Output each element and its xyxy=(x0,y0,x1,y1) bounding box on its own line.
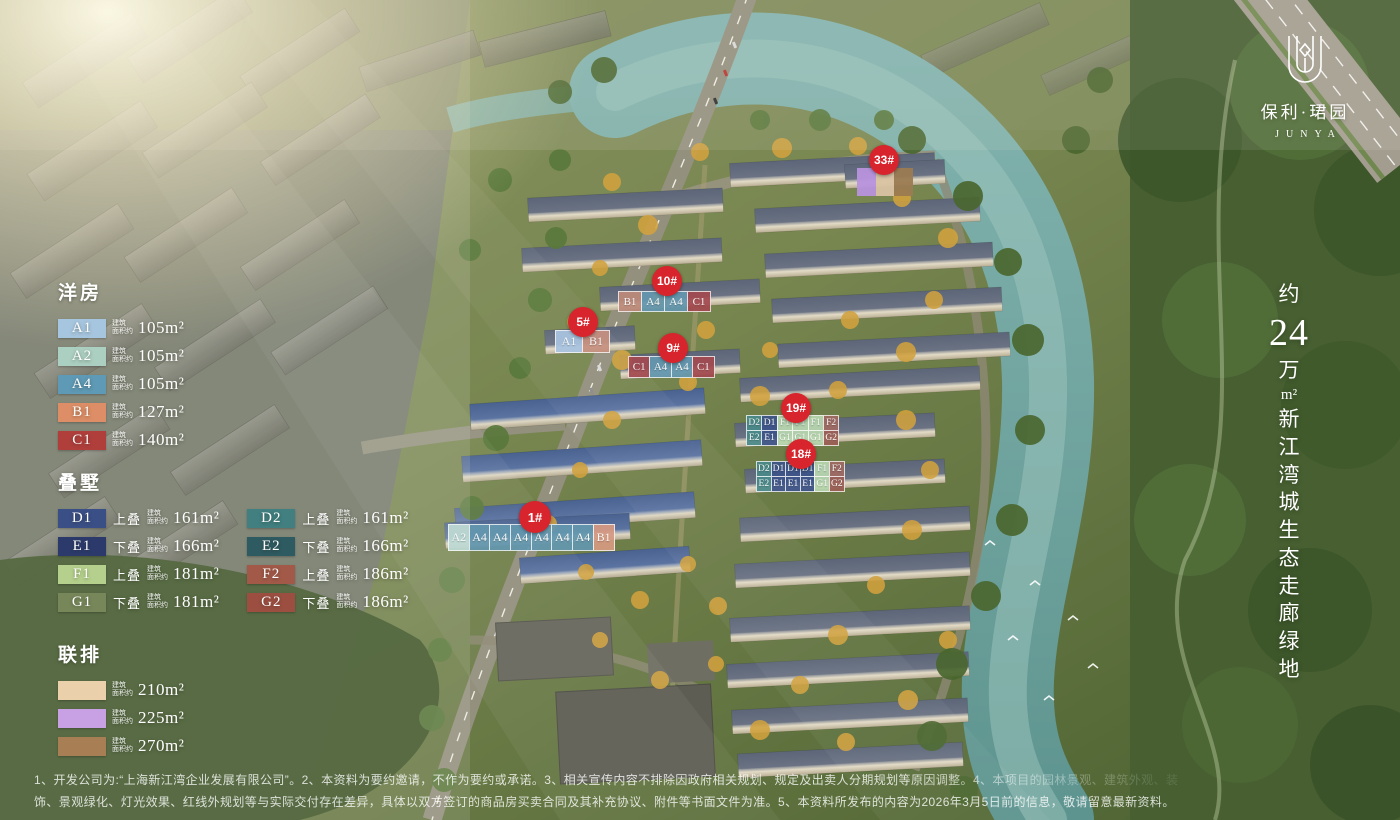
tagline-char: 城 xyxy=(1279,492,1300,513)
tagline-char: 万 xyxy=(1279,360,1300,381)
unit-cell: C1 xyxy=(628,356,650,378)
legend-rows: D1 上叠 建筑面积约 161m² E1 下叠 建筑面积约 166m² F1 xyxy=(58,508,219,620)
unit-type-swatch: G2 xyxy=(247,593,295,612)
building-badge: 19# xyxy=(781,393,811,423)
unit-cell: A4 xyxy=(572,524,594,551)
area-value: 270m² xyxy=(138,736,184,756)
tagline-char: 态 xyxy=(1279,548,1300,569)
area-prefix: 建筑面积约 xyxy=(336,594,357,610)
unit-cell: F2 xyxy=(829,461,845,477)
legend-row: E1 下叠 建筑面积约 166m² xyxy=(58,536,219,556)
tagline-char: 江 xyxy=(1279,437,1300,458)
building-9: 9# C1A4A4C1 xyxy=(629,356,715,378)
legend-row: F2 上叠 建筑面积约 186m² xyxy=(247,564,408,584)
unit-cell: B1 xyxy=(593,524,615,551)
building-badge: 18# xyxy=(786,439,816,469)
brand-name: 保利·珺园 xyxy=(1247,98,1363,123)
building-18: 18# D2D1D1D1F1F2 E2E1E1E1G1G2 xyxy=(757,461,845,492)
unit-cell: G2 xyxy=(823,430,839,446)
unit-cell: E1 xyxy=(800,476,816,492)
tier-label: 下叠 xyxy=(113,593,141,612)
legend-row: A1 建筑面积约 105m² xyxy=(58,318,184,338)
area-prefix: 建筑面积约 xyxy=(112,320,133,336)
tagline-char: 绿 xyxy=(1279,631,1300,652)
legend-rows: D2 上叠 建筑面积约 161m² E2 下叠 建筑面积约 166m² F2 xyxy=(247,508,408,620)
unit-type-swatch: B1 xyxy=(58,403,106,422)
unit-cell: B1 xyxy=(618,291,642,312)
unit-type-swatch: G1 xyxy=(58,593,106,612)
legend-row: D2 上叠 建筑面积约 161m² xyxy=(247,508,408,528)
building-badge: 9# xyxy=(658,333,688,363)
area-value: 166m² xyxy=(362,536,408,556)
brand-latin-name: JUNYA xyxy=(1247,129,1363,140)
area-value: 127m² xyxy=(138,402,184,422)
area-value: 161m² xyxy=(362,508,408,528)
tagline-char: 地 xyxy=(1279,659,1300,680)
tier-label: 上叠 xyxy=(302,509,330,528)
unit-cell: A4 xyxy=(551,524,573,551)
area-prefix: 建筑面积约 xyxy=(336,566,357,582)
tagline-unit: m² xyxy=(1281,388,1297,403)
tier-label: 下叠 xyxy=(113,537,141,556)
unit-cell xyxy=(894,168,913,196)
disclaimer-line-1: 1、开发公司为:“上海新江湾企业发展有限公司”。2、本资料为要约邀请，不作为要约… xyxy=(34,771,1178,788)
unit-type-swatch: F2 xyxy=(247,565,295,584)
junya-monogram-icon xyxy=(1283,34,1327,84)
tagline-char: 新 xyxy=(1279,409,1300,430)
legend-section-title: 叠墅 xyxy=(58,468,409,495)
unit-cell: A2 xyxy=(448,524,470,551)
eco-corridor-tagline: 约 24 万 m² 新江湾城生态走廊绿地 xyxy=(1262,281,1316,683)
unit-cells: E2E1E1E1G1G2 xyxy=(757,476,845,492)
legend-row: 建筑面积约 210m² xyxy=(58,680,184,700)
legend-row: C1 建筑面积约 140m² xyxy=(58,430,184,450)
tagline-number: 24 xyxy=(1269,314,1309,352)
tagline-chars: 新江湾城生态走廊绿地 xyxy=(1279,406,1300,684)
area-prefix: 建筑面积约 xyxy=(112,738,133,754)
building-badge: 33# xyxy=(869,145,899,175)
legend-lianpai: 联排 建筑面积约 210m² 建筑面积约 225m² xyxy=(58,640,184,764)
unit-cell: E1 xyxy=(771,476,787,492)
unit-cell: C1 xyxy=(692,356,714,378)
unit-type-swatch: A2 xyxy=(58,347,106,366)
unit-cell: A4 xyxy=(489,524,511,551)
area-prefix: 建筑面积约 xyxy=(112,682,133,698)
legend-row: 建筑面积约 270m² xyxy=(58,736,184,756)
area-prefix: 建筑面积约 xyxy=(147,594,168,610)
building-badge: 1# xyxy=(519,501,551,533)
unit-type-swatch: E1 xyxy=(58,537,106,556)
tagline-char: 生 xyxy=(1279,520,1300,541)
building-1: 1# A2A4A4A4A4A4A4B1 xyxy=(449,524,615,551)
area-prefix: 建筑面积约 xyxy=(147,510,168,526)
tier-label: 下叠 xyxy=(302,593,330,612)
area-prefix: 建筑面积约 xyxy=(336,538,357,554)
legend-row: F1 上叠 建筑面积约 181m² xyxy=(58,564,219,584)
unit-type-swatch: D2 xyxy=(247,509,295,528)
area-value: 166m² xyxy=(173,536,219,556)
legend-section-title: 联排 xyxy=(58,640,184,667)
area-value: 140m² xyxy=(138,430,184,450)
tier-label: 上叠 xyxy=(113,565,141,584)
legend-row: E2 下叠 建筑面积约 166m² xyxy=(247,536,408,556)
brand-logo: 保利·珺园 JUNYA xyxy=(1247,34,1363,140)
legend-rows: 建筑面积约 210m² 建筑面积约 225m² 建筑面积约 270m² xyxy=(58,680,184,756)
legend-rows: A1 建筑面积约 105m² A2 建筑面积约 105m² A4 建筑面积约 xyxy=(58,318,184,450)
building-badge: 5# xyxy=(568,307,598,337)
unit-type-swatch xyxy=(58,709,106,728)
tier-label: 下叠 xyxy=(302,537,330,556)
unit-cell xyxy=(857,168,876,196)
unit-cell: F2 xyxy=(823,415,839,431)
unit-type-swatch: A1 xyxy=(58,319,106,338)
masterplan-poster: 保利·珺园 JUNYA 洋房 A1 建筑面积约 105m² A2 建筑面积约 1… xyxy=(0,0,1400,820)
area-prefix: 建筑面积约 xyxy=(112,348,133,364)
area-value: 105m² xyxy=(138,374,184,394)
tagline-char: 湾 xyxy=(1279,465,1300,486)
legend-row: G1 下叠 建筑面积约 181m² xyxy=(58,592,219,612)
legend-yangfang: 洋房 A1 建筑面积约 105m² A2 建筑面积约 105m² xyxy=(58,278,184,458)
unit-cell: G1 xyxy=(814,476,830,492)
unit-cell: D2 xyxy=(756,461,772,477)
area-prefix: 建筑面积约 xyxy=(112,710,133,726)
area-prefix: 建筑面积约 xyxy=(336,510,357,526)
area-prefix: 建筑面积约 xyxy=(112,432,133,448)
unit-type-swatch: C1 xyxy=(58,431,106,450)
legend-row: B1 建筑面积约 127m² xyxy=(58,402,184,422)
unit-cell: E2 xyxy=(746,430,762,446)
building-5: 5# A1B1 xyxy=(556,330,610,353)
area-prefix: 建筑面积约 xyxy=(147,538,168,554)
tagline-char: 廊 xyxy=(1279,603,1300,624)
unit-type-swatch: F1 xyxy=(58,565,106,584)
area-value: 105m² xyxy=(138,346,184,366)
area-value: 186m² xyxy=(362,564,408,584)
area-value: 105m² xyxy=(138,318,184,338)
unit-type-swatch xyxy=(58,737,106,756)
tier-label: 上叠 xyxy=(113,509,141,528)
area-prefix: 建筑面积约 xyxy=(147,566,168,582)
area-prefix: 建筑面积约 xyxy=(112,404,133,420)
legend-section-title: 洋房 xyxy=(58,278,184,305)
area-value: 225m² xyxy=(138,708,184,728)
legend-dieshu: 叠墅 D1 上叠 建筑面积约 161m² E1 下叠 建筑面积约 1 xyxy=(58,468,409,620)
disclaimer-line-2: 饰、景观绿化、灯光效果、红线外规划等与实际交付存在差异，具体以双方签订的商品房买… xyxy=(34,793,1175,810)
unit-type-swatch xyxy=(58,681,106,700)
legend-row: G2 下叠 建筑面积约 186m² xyxy=(247,592,408,612)
unit-cell: F1 xyxy=(814,461,830,477)
tier-label: 上叠 xyxy=(302,565,330,584)
area-value: 181m² xyxy=(173,564,219,584)
area-value: 210m² xyxy=(138,680,184,700)
unit-type-swatch: D1 xyxy=(58,509,106,528)
unit-type-swatch: A4 xyxy=(58,375,106,394)
area-value: 161m² xyxy=(173,508,219,528)
unit-cell: E1 xyxy=(761,430,777,446)
unit-cell: D1 xyxy=(761,415,777,431)
unit-cell: F1 xyxy=(808,415,824,431)
legend-row: A4 建筑面积约 105m² xyxy=(58,374,184,394)
tagline-char: 约 xyxy=(1279,284,1300,305)
building-badge: 10# xyxy=(652,266,682,296)
unit-cell: D1 xyxy=(771,461,787,477)
unit-cell: G2 xyxy=(829,476,845,492)
unit-cell: E1 xyxy=(785,476,801,492)
area-value: 181m² xyxy=(173,592,219,612)
tagline-char: 走 xyxy=(1279,576,1300,597)
legend-row: 建筑面积约 225m² xyxy=(58,708,184,728)
legend-row: A2 建筑面积约 105m² xyxy=(58,346,184,366)
site-aerial-rendering xyxy=(0,0,1400,820)
unit-type-swatch: E2 xyxy=(247,537,295,556)
area-prefix: 建筑面积约 xyxy=(112,376,133,392)
building-33: 33# xyxy=(857,168,913,196)
area-value: 186m² xyxy=(362,592,408,612)
unit-cell: A4 xyxy=(469,524,491,551)
building-10: 10# B1A4A4C1 xyxy=(619,291,711,312)
unit-cell: D2 xyxy=(746,415,762,431)
unit-cell: E2 xyxy=(756,476,772,492)
legend-row: D1 上叠 建筑面积约 161m² xyxy=(58,508,219,528)
unit-cell: C1 xyxy=(687,291,711,312)
